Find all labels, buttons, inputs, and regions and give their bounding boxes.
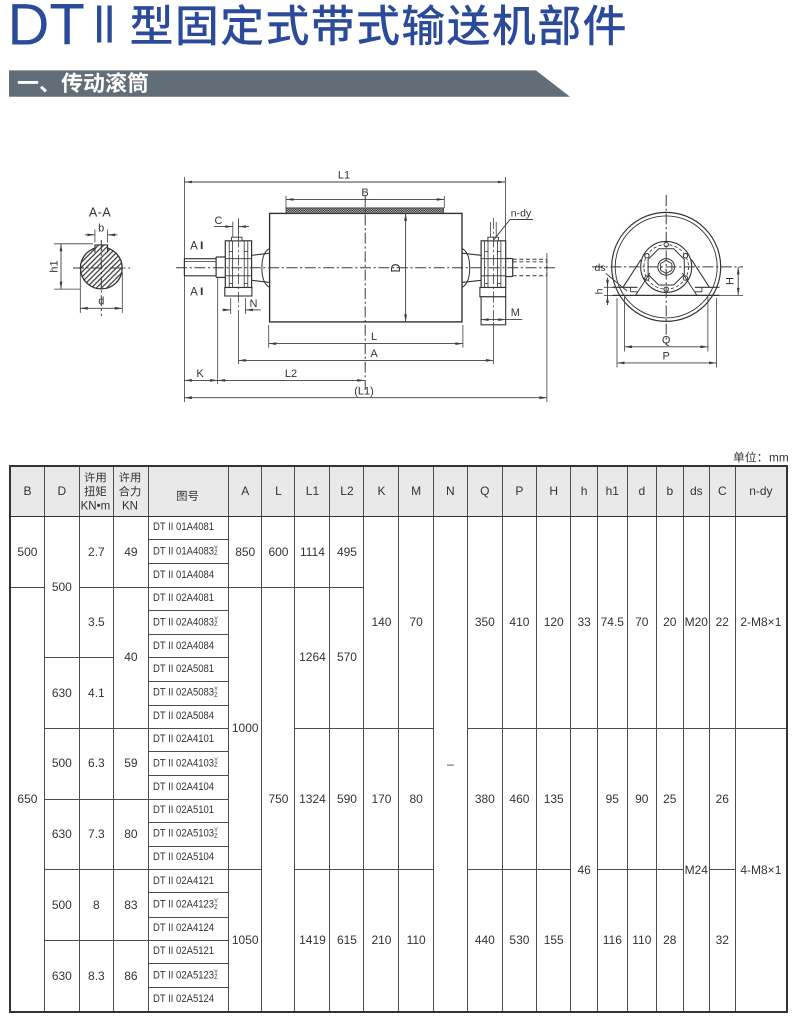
svg-text:KN: KN (122, 501, 138, 513)
svg-text:K: K (196, 368, 204, 380)
svg-text:n-dy: n-dy (511, 208, 532, 220)
svg-text:ds: ds (594, 262, 605, 274)
svg-text:M: M (511, 307, 520, 319)
svg-text:Q: Q (662, 334, 671, 346)
svg-text:L: L (371, 331, 377, 343)
svg-text:(L1): (L1) (354, 385, 374, 397)
svg-text:L2: L2 (285, 368, 297, 380)
svg-text:N: N (250, 298, 258, 310)
svg-text:h1: h1 (49, 260, 61, 272)
svg-text:C: C (215, 215, 223, 227)
svg-text:A: A (190, 287, 198, 299)
svg-text:L1: L1 (338, 170, 350, 182)
svg-text:DT: DT (8, 0, 85, 58)
svg-text:d: d (98, 296, 104, 308)
svg-text:A: A (190, 241, 198, 253)
svg-text:A: A (370, 348, 378, 360)
svg-text:b: b (98, 223, 104, 235)
svg-text:A-A: A-A (89, 206, 112, 220)
svg-text:H: H (725, 277, 737, 285)
svg-text:KN•m: KN•m (81, 501, 111, 513)
svg-text:P: P (663, 351, 670, 363)
svg-text:h: h (594, 288, 606, 294)
